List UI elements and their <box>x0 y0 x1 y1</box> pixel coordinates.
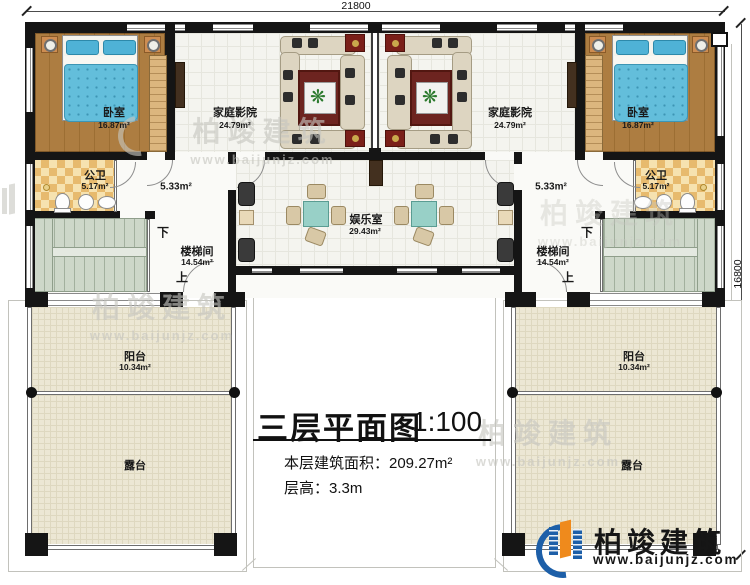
railing-post <box>26 387 37 398</box>
stair-rail <box>52 247 147 257</box>
nightstand-icon <box>144 36 161 53</box>
wall-bathroom-left-bottom <box>25 211 120 218</box>
pedestal-sink-icon <box>656 194 672 210</box>
balcony-side-wall <box>27 307 32 545</box>
plan-scale: 1:100 <box>412 406 482 438</box>
cushion <box>448 134 458 144</box>
plan-title: 三层平面图 <box>257 403 422 448</box>
chair-icon <box>394 206 409 225</box>
cushion <box>308 38 318 48</box>
wall-game-room-left <box>228 190 236 292</box>
railing-post <box>229 387 240 398</box>
nightstand-icon <box>41 36 58 53</box>
window <box>26 164 33 210</box>
nightstand-icon <box>589 36 606 53</box>
stair-down-label-right: 下 <box>581 224 593 241</box>
nightstand-icon <box>692 36 709 53</box>
company-logo-icon <box>536 516 590 572</box>
logo-building-bar <box>549 527 558 555</box>
window <box>565 24 623 31</box>
wing-wall-left <box>160 292 183 307</box>
sofa-chaise-icon <box>340 55 365 130</box>
plant-icon: ❋ <box>310 88 326 107</box>
toilet-tank-icon <box>679 208 696 213</box>
basin-icon <box>634 196 652 209</box>
tv-cabinet-icon <box>567 62 577 108</box>
room-area-home-theater-right: 24.79m² <box>494 120 526 130</box>
room-label-home-theater-right: 家庭影院 <box>488 104 532 120</box>
media-cabinet-icon <box>369 160 383 186</box>
pillow-icon <box>653 40 686 55</box>
dimension-height-label: 16800 <box>732 252 744 296</box>
balcony-side-wall <box>716 307 721 545</box>
room-area-balcony-right: 10.34m² <box>618 362 650 372</box>
wing-wall-right <box>702 292 725 307</box>
cushion <box>395 68 405 78</box>
room-area-game-room: 29.43m² <box>349 226 381 236</box>
wall-game-room-right <box>514 152 522 164</box>
room-area-bedroom-left: 16.87m² <box>98 120 130 130</box>
pillow-icon <box>103 40 136 55</box>
terrace-parapet <box>32 545 235 550</box>
room-area-stairwell-right: 14.54m² <box>537 257 569 267</box>
wing-wall-left <box>25 292 48 307</box>
game-table-icon <box>303 201 329 227</box>
stair-side-wall <box>147 219 150 292</box>
room-label-terrace-right: 露台 <box>621 457 643 473</box>
company-website: www.baijunjz.com <box>593 552 738 567</box>
speaker-icon <box>345 34 365 52</box>
stair-landing-line <box>52 218 53 292</box>
room-label-terrace-left: 露台 <box>124 457 146 473</box>
wall-bathroom-right-bottom <box>630 211 725 218</box>
balcony-side-wall <box>231 307 236 545</box>
speaker-icon <box>385 130 405 147</box>
speaker-icon <box>345 130 365 147</box>
chair-icon <box>439 206 454 225</box>
cushion <box>448 38 458 48</box>
cushion <box>457 92 467 102</box>
stair-up-label-right: 上 <box>562 269 574 286</box>
corner-block <box>711 32 728 47</box>
wardrobe-icon <box>585 55 603 152</box>
balcony-side-wall <box>511 307 516 545</box>
floor-height-text: 层高：3.3m <box>284 477 362 498</box>
wing-wall-right <box>505 292 536 307</box>
corner-pillar <box>502 533 525 556</box>
logo-building-bar <box>573 529 582 559</box>
floor-area-text: 本层建筑面积：209.27m² <box>284 452 452 473</box>
room-area-stairwell-left: 14.54m² <box>181 257 213 267</box>
armchair-icon <box>238 238 255 262</box>
tv-cabinet-icon <box>175 62 185 108</box>
room-area-hallway-left: 5.33m² <box>160 182 192 193</box>
armchair-icon <box>497 238 514 262</box>
title-underline <box>253 439 491 441</box>
cushion <box>310 134 320 144</box>
window <box>717 164 724 210</box>
balcony-railing <box>513 391 718 395</box>
balcony-right-floor <box>513 307 718 392</box>
theater-divider-wall <box>371 33 379 148</box>
stair-rail <box>603 247 698 257</box>
pedestal-sink-icon <box>78 194 94 210</box>
game-table-icon <box>411 201 437 227</box>
room-area-hallway-right: 5.33m² <box>535 182 567 193</box>
stair-landing-line <box>697 218 698 292</box>
window <box>590 293 702 306</box>
wall-game-room-left <box>228 152 236 164</box>
towel-hook-icon <box>43 184 50 191</box>
cushion <box>292 134 302 144</box>
room-area-home-theater-left: 24.79m² <box>219 120 251 130</box>
window <box>462 268 500 273</box>
watermark-logo-icon <box>2 188 7 214</box>
stair-wall-cap <box>145 211 155 219</box>
room-label-bedroom-right: 卧室 <box>627 104 649 120</box>
cushion <box>292 38 302 48</box>
cushion <box>430 134 440 144</box>
window <box>382 24 440 31</box>
basin-icon <box>98 196 116 209</box>
cushion <box>395 95 405 105</box>
armchair-icon <box>497 182 514 206</box>
window <box>300 268 343 273</box>
speaker-icon <box>385 34 405 52</box>
window <box>252 268 272 273</box>
wing-wall-left <box>214 292 245 307</box>
room-area-bedroom-right: 16.87m² <box>622 120 654 130</box>
plant-icon: ❋ <box>422 88 438 107</box>
balcony-railing <box>32 391 235 395</box>
right-edge-line <box>731 44 732 300</box>
room-area-balcony-left: 10.34m² <box>119 362 151 372</box>
room-area-bathroom-left: 5.17m² <box>82 181 109 191</box>
bed-blanket-icon <box>64 64 138 122</box>
wall-game-room-right <box>514 190 522 292</box>
window <box>310 24 368 31</box>
window <box>127 24 185 31</box>
window <box>397 268 437 273</box>
watermark-logo-icon <box>9 183 15 214</box>
window <box>26 48 33 112</box>
pillow-icon <box>616 40 649 55</box>
cushion <box>283 92 293 102</box>
bed-blanket-icon <box>614 64 688 122</box>
chair-icon <box>286 206 301 225</box>
stair-up-label-left: 上 <box>176 269 188 286</box>
cushion <box>432 38 442 48</box>
stair-wall-cap <box>595 211 605 219</box>
floor-plan-canvas: 21800 16800 <box>0 0 750 585</box>
room-label-home-theater-left: 家庭影院 <box>213 104 257 120</box>
corner-pillar <box>25 533 48 556</box>
corner-pillar <box>214 533 237 556</box>
room-area-bathroom-right: 5.17m² <box>643 181 670 191</box>
window <box>48 293 160 306</box>
window <box>26 226 33 288</box>
armchair-icon <box>238 182 255 206</box>
chair-icon <box>307 184 326 199</box>
chair-icon <box>415 184 434 199</box>
stair-down-label-left: 下 <box>157 224 169 241</box>
side-table-icon <box>498 210 513 225</box>
theater-divider-cap <box>369 22 381 33</box>
chair-icon <box>331 206 346 225</box>
pillow-icon <box>66 40 99 55</box>
railing-post <box>711 387 722 398</box>
wing-wall-right <box>567 292 590 307</box>
side-table-icon <box>239 210 254 225</box>
toilet-tank-icon <box>54 208 71 213</box>
window <box>717 44 724 136</box>
cushion <box>345 68 355 78</box>
towel-hook-icon <box>700 184 707 191</box>
room-label-bedroom-left: 卧室 <box>103 104 125 120</box>
railing-post <box>507 387 518 398</box>
window <box>213 24 253 31</box>
window <box>497 24 537 31</box>
cushion <box>457 70 467 80</box>
cushion <box>345 95 355 105</box>
sofa-chaise-icon <box>387 55 412 130</box>
logo-building-bar <box>560 520 571 559</box>
cushion <box>283 70 293 80</box>
wall-bedroom-right-bottom <box>603 152 725 160</box>
room-label-game-room: 娱乐室 <box>350 211 383 227</box>
window <box>717 226 724 288</box>
wall-game-room-top <box>265 152 485 160</box>
dimension-line-top <box>27 11 725 12</box>
